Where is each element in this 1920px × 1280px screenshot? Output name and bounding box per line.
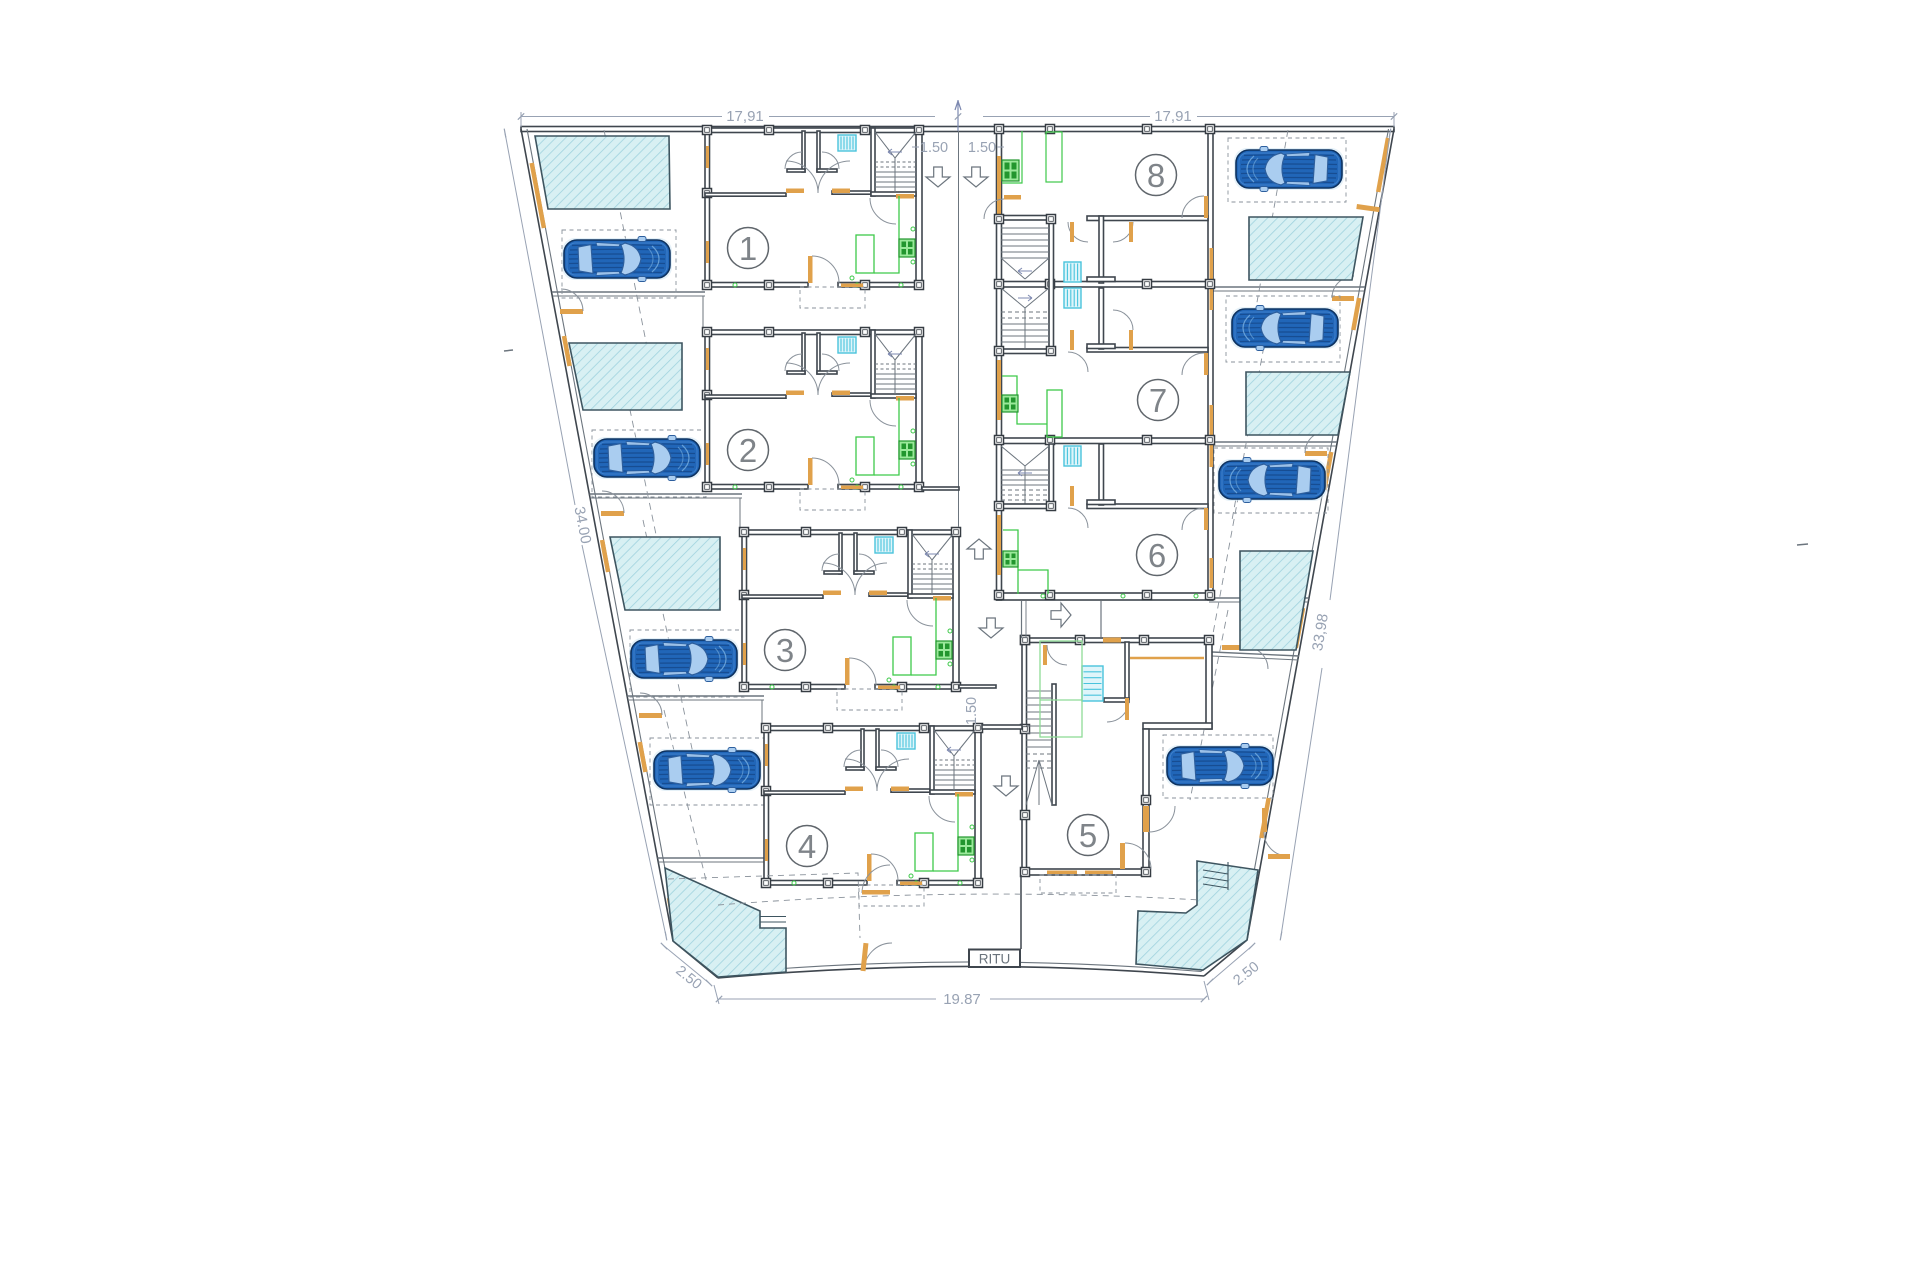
svg-text:17,91: 17,91 <box>1154 108 1192 125</box>
svg-text:19.87: 19.87 <box>943 991 981 1008</box>
svg-text:4: 4 <box>798 828 816 865</box>
svg-text:5: 5 <box>1079 817 1097 854</box>
svg-text:RITU: RITU <box>979 952 1011 967</box>
svg-text:1.50: 1.50 <box>964 697 980 725</box>
svg-text:3: 3 <box>776 632 794 669</box>
svg-text:1: 1 <box>739 230 757 267</box>
svg-text:7: 7 <box>1149 382 1167 419</box>
svg-text:1.50: 1.50 <box>920 140 948 156</box>
svg-text:2: 2 <box>739 432 757 469</box>
svg-text:6: 6 <box>1148 537 1166 574</box>
svg-text:8: 8 <box>1147 157 1165 194</box>
svg-text:17,91: 17,91 <box>726 108 764 125</box>
svg-text:1.50: 1.50 <box>968 140 996 156</box>
